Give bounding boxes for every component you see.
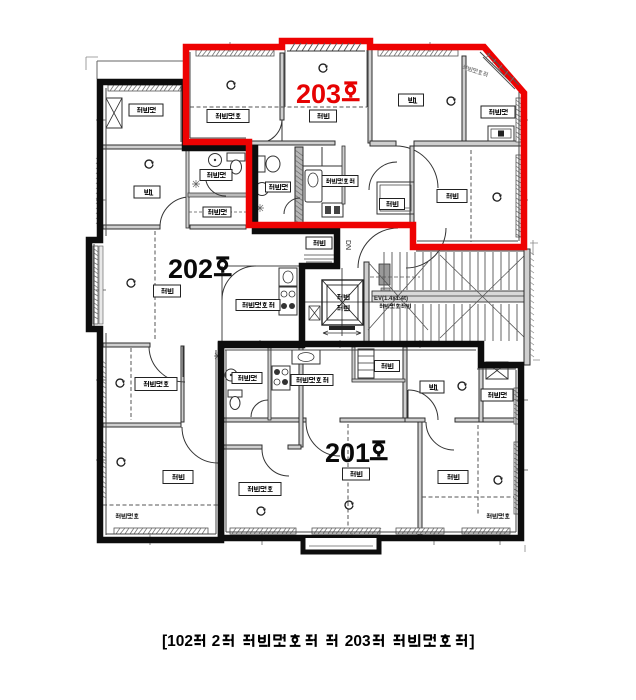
svg-text:203: 203 [296,79,341,109]
svg-text:DN: DN [344,240,351,250]
svg-text:EV(1.4x1.4t): EV(1.4x1.4t) [374,296,408,302]
svg-text:1: 1 [434,384,439,393]
svg-text:1: 1 [413,97,418,106]
svg-text:1: 1 [149,189,154,198]
svg-text:2: 2 [212,633,221,650]
svg-text:201: 201 [325,438,370,468]
svg-text:[102: [102 [162,633,193,650]
svg-text:202: 202 [168,254,213,284]
svg-text:]: ] [469,633,474,650]
svg-text:203: 203 [345,633,371,650]
